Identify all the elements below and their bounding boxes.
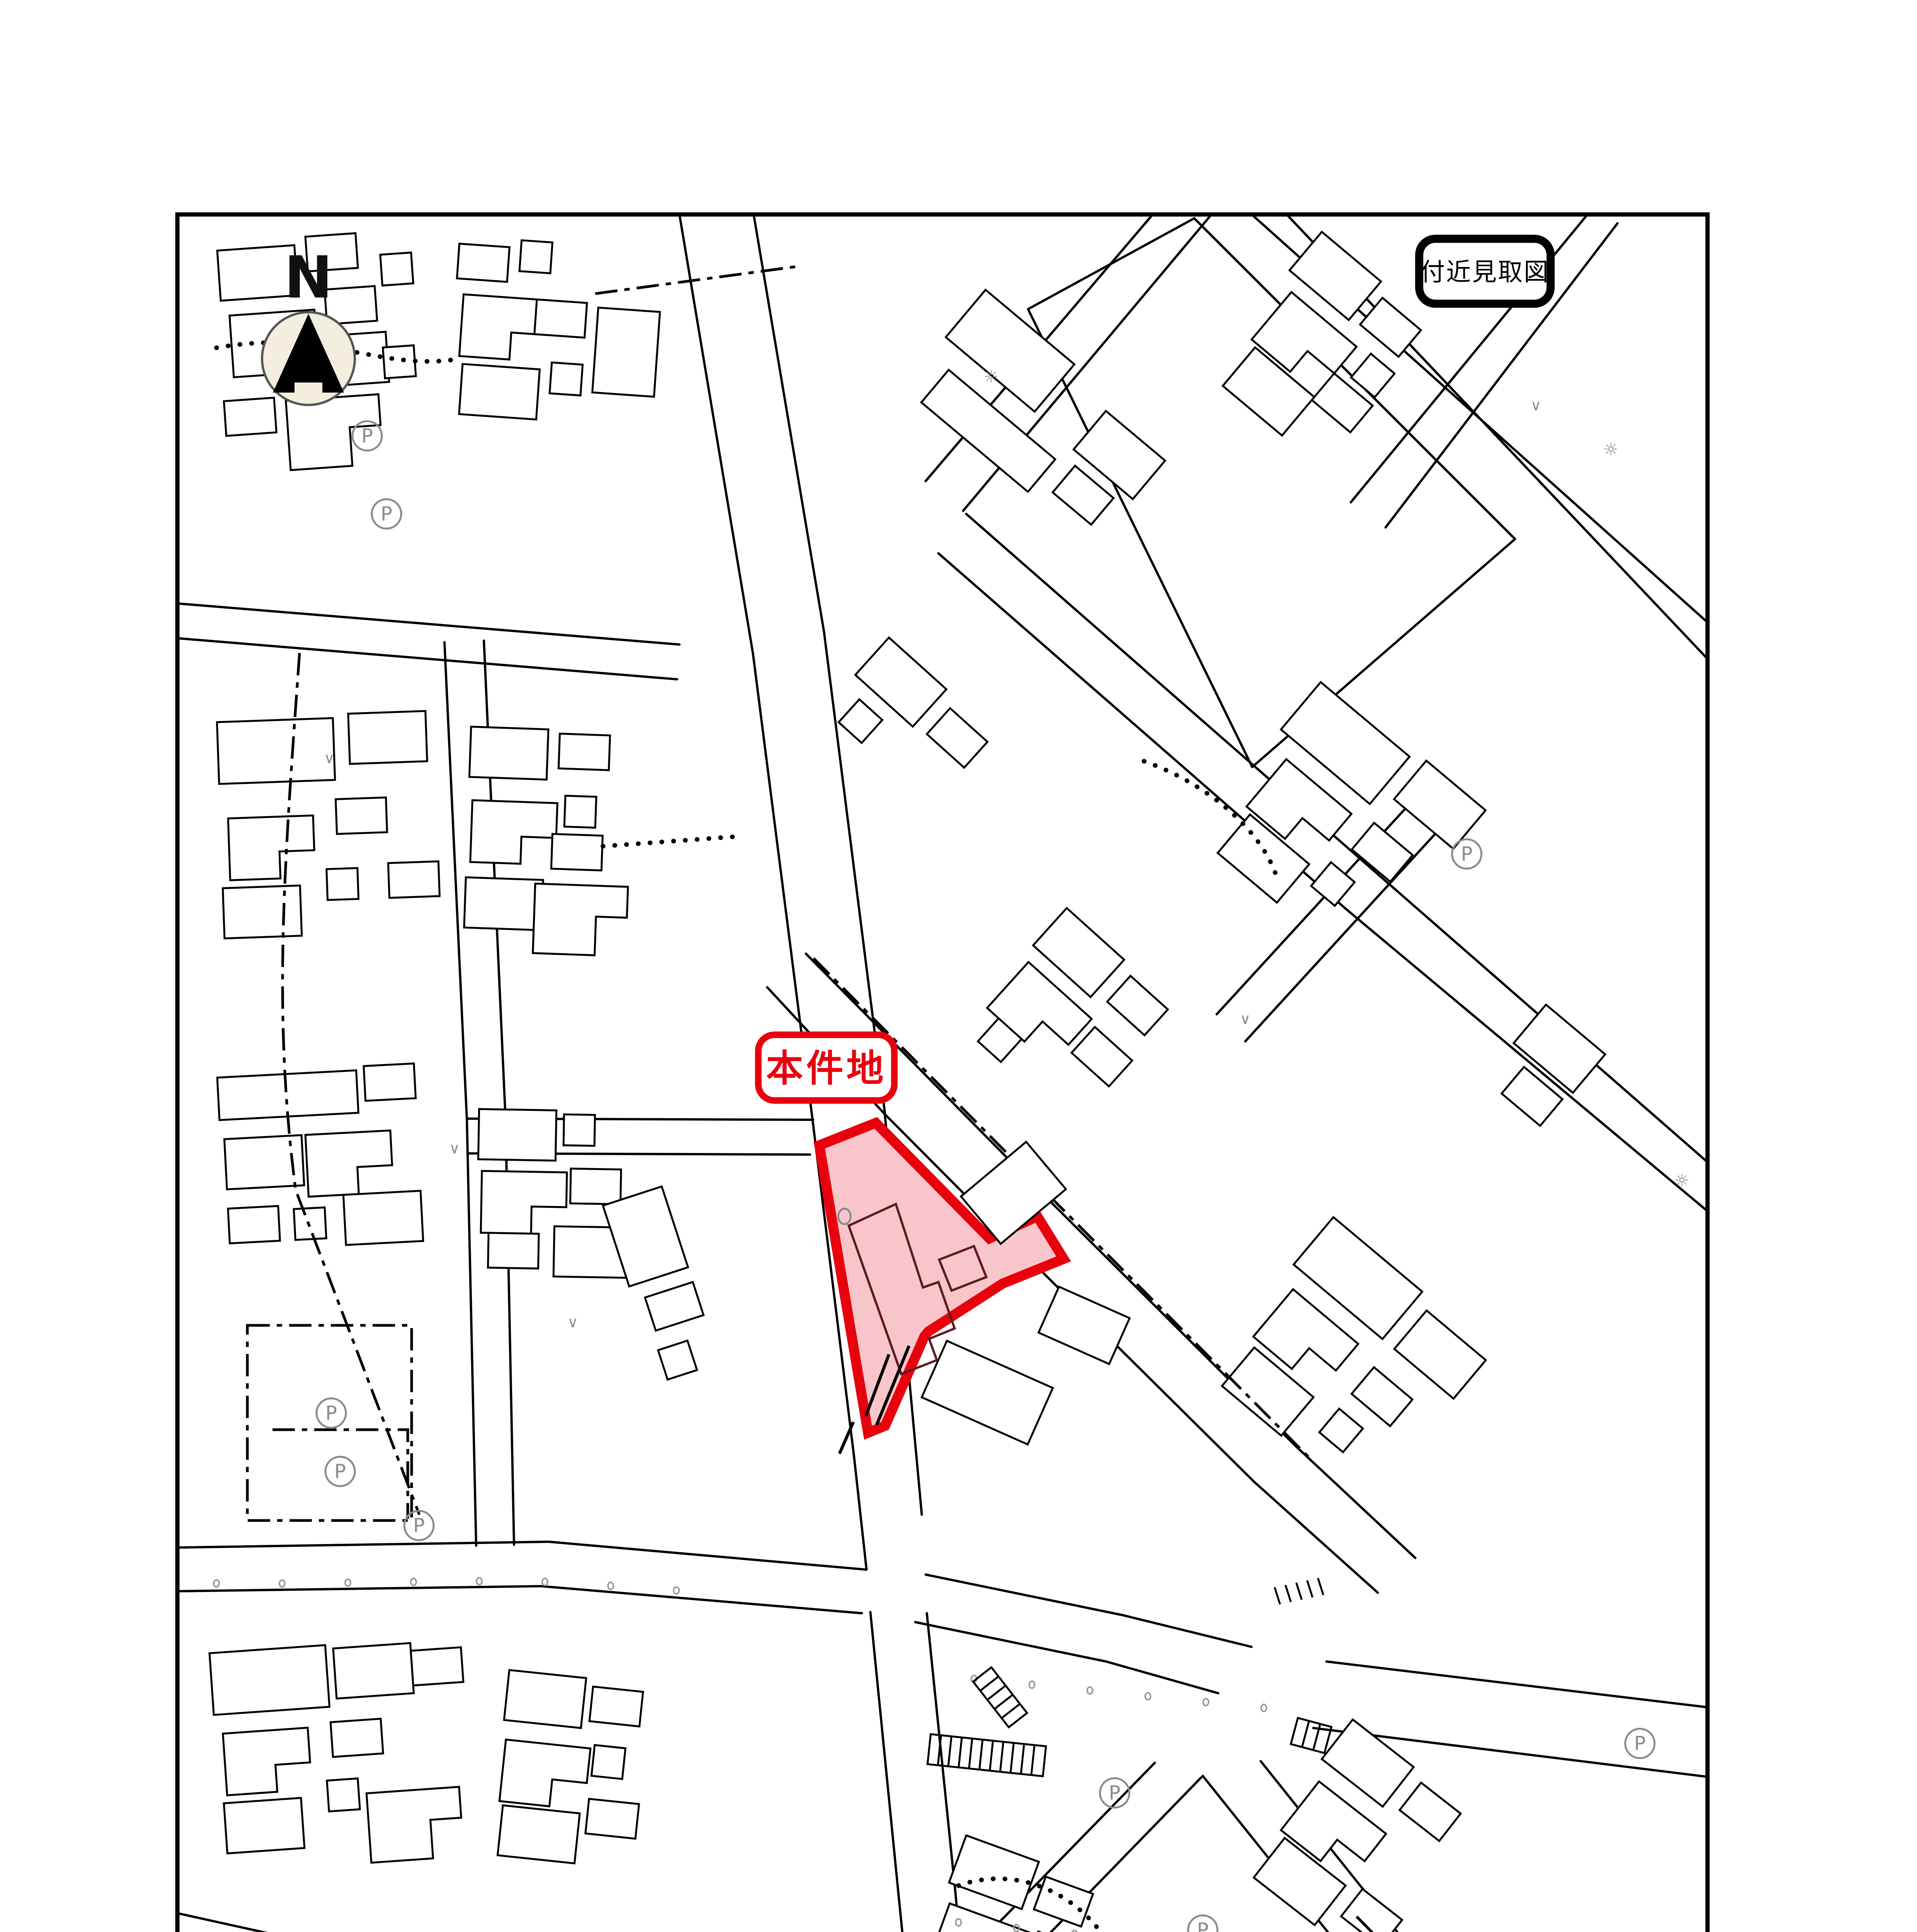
parking-symbol-letter: P <box>1197 1919 1209 1932</box>
north-label: N <box>284 244 333 311</box>
page: { "doc": { "title": "付近見取図", "site_label… <box>0 0 1917 1932</box>
map-title-text: 付近見取図 <box>1420 258 1550 287</box>
parking-symbol-letter: P <box>1634 1732 1646 1755</box>
parking-symbol-letter: P <box>1461 843 1473 865</box>
map-title: 付近見取図 <box>1419 239 1551 304</box>
vegetation-mark-icon: ∨ <box>1531 397 1541 414</box>
parking-symbol-letter: P <box>325 1402 337 1424</box>
north-arrow-notch <box>295 383 322 393</box>
vicinity-map: P P P P P P P P P P P ∨ ∨ ∨ ∨ ∨ ∨ ☼ ☼ ☼ <box>0 0 1917 1932</box>
vegetation-mark-icon: ∨ <box>567 1314 578 1331</box>
landmark-icon: ☼ <box>1603 440 1618 459</box>
parking-symbol-letter: P <box>413 1514 425 1537</box>
parking-symbol-letter: P <box>381 503 392 525</box>
vegetation-mark-icon: ∨ <box>324 750 335 767</box>
parking-symbol-letter: P <box>361 425 373 447</box>
vegetation-mark-icon: ∨ <box>1240 1010 1251 1027</box>
landmark-icon: ☼ <box>1674 1171 1689 1190</box>
subject-site-label: 本件地 <box>758 1035 894 1100</box>
subject-site-label-text: 本件地 <box>766 1047 887 1090</box>
vegetation-mark-icon: ∨ <box>449 1140 460 1157</box>
parking-symbol-letter: P <box>334 1460 346 1483</box>
parking-symbol-letter: P <box>1109 1782 1120 1804</box>
landmark-icon: ☼ <box>984 367 999 387</box>
